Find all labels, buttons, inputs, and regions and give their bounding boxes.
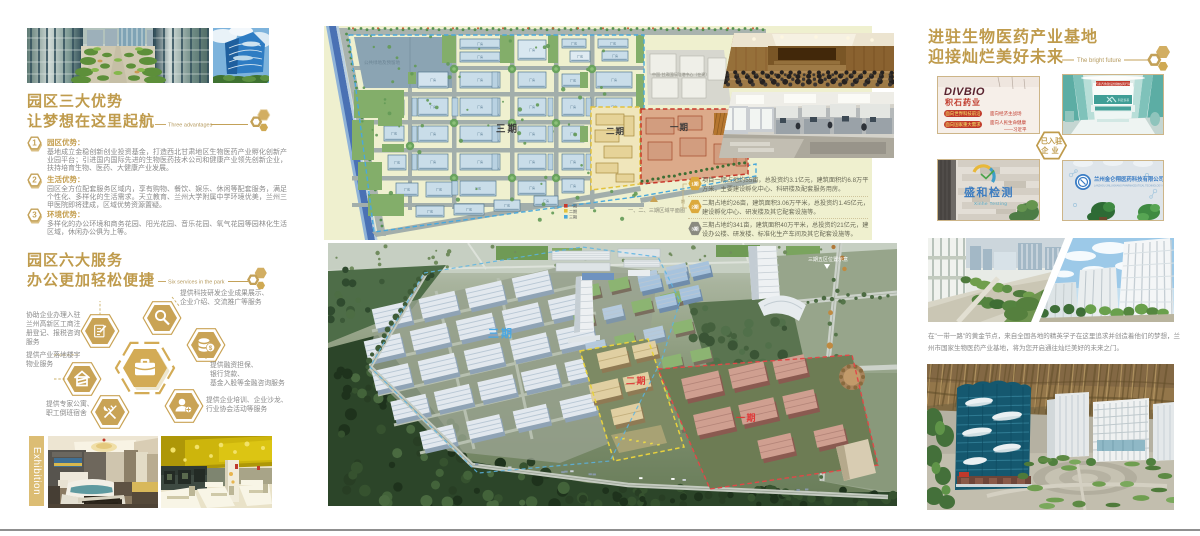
svg-text:行业协会活动等服务: 行业协会活动等服务 (206, 404, 267, 413)
svg-text:Three advantages: Three advantages (168, 123, 213, 129)
svg-text:厂房: 厂房 (436, 187, 442, 192)
svg-text:厂房: 厂房 (529, 159, 535, 164)
svg-text:公共绿地及预留地: 公共绿地及预留地 (364, 59, 400, 66)
svg-text:厂房: 厂房 (404, 187, 410, 192)
svg-text:2期: 2期 (691, 204, 699, 211)
svg-text:已入驻: 已入驻 (1041, 137, 1063, 146)
svg-text:银行贷款、: 银行贷款、 (210, 369, 244, 378)
svg-text:三期: 三期 (569, 214, 577, 220)
svg-text:厂房: 厂房 (529, 77, 535, 82)
svg-text:1: 1 (32, 139, 37, 148)
svg-text:三期五区位置示意: 三期五区位置示意 (808, 256, 848, 263)
svg-text:厂房: 厂房 (577, 54, 583, 59)
svg-text:厂房: 厂房 (477, 159, 483, 164)
svg-text:厂房: 厂房 (543, 198, 549, 203)
svg-text:一期: 一期 (670, 122, 689, 132)
svg-text:二期: 二期 (626, 375, 647, 386)
svg-text:积石药业: 积石药业 (945, 97, 981, 107)
svg-text:万泰齐鲁建设创驰谷风行动: 万泰齐鲁建设创驰谷风行动 (1095, 81, 1131, 86)
svg-text:厂房: 厂房 (610, 41, 616, 46)
svg-text:期: 期 (681, 198, 685, 204)
svg-text:厂房: 厂房 (529, 185, 535, 190)
svg-text:一期: 一期 (569, 203, 577, 209)
svg-text:面向国家重大需求: 面向国家重大需求 (945, 121, 981, 128)
svg-text:厂房: 厂房 (477, 54, 483, 59)
svg-text:科近泰基: 科近泰基 (1118, 98, 1129, 102)
svg-text:1期: 1期 (691, 181, 699, 188)
svg-text:盛和检测: 盛和检测 (964, 185, 1014, 199)
svg-text:厂房: 厂房 (504, 203, 510, 208)
svg-text:面向人民生命健康: 面向人民生命健康 (990, 119, 1026, 126)
svg-text:一: 一 (681, 188, 685, 193)
svg-text:厂房: 厂房 (570, 183, 576, 188)
svg-text:册登记、报税咨询: 册登记、报税咨询 (26, 328, 81, 337)
svg-text:提供产业落地楼宇: 提供产业落地楼宇 (26, 350, 81, 359)
svg-text:厂房: 厂房 (529, 131, 535, 136)
svg-text:职工倒班宿舍: 职工倒班宿舍 (46, 408, 87, 417)
svg-text:厂房: 厂房 (477, 41, 483, 46)
svg-text:面向经济主战场: 面向经济主战场 (990, 110, 1022, 117)
svg-text:厂房: 厂房 (430, 131, 436, 136)
svg-text:一期: 一期 (736, 412, 757, 423)
svg-text:兰州金仑翔医药科技有限公司: 兰州金仑翔医药科技有限公司 (1094, 175, 1163, 183)
svg-text:厂房: 厂房 (529, 47, 535, 52)
svg-text:二期: 二期 (606, 126, 625, 136)
svg-text:厂房: 厂房 (394, 160, 400, 165)
svg-text:厂房: 厂房 (570, 159, 576, 164)
svg-text:企业介绍、交流推广等服务: 企业介绍、交流推广等服务 (180, 297, 262, 306)
svg-text:二期: 二期 (569, 208, 577, 214)
svg-text:厂房: 厂房 (391, 131, 397, 136)
svg-text:提供融资担保、: 提供融资担保、 (210, 360, 258, 369)
svg-text:一、二、三期区域平面图: 一、二、三期区域平面图 (628, 206, 685, 214)
svg-text:协助企业办理入驻: 协助企业办理入驻 (26, 310, 81, 319)
svg-text:Xinhe Testing: Xinhe Testing (974, 201, 1007, 206)
svg-text:面向世界科技前沿: 面向世界科技前沿 (945, 110, 981, 117)
svg-text:厂房: 厂房 (570, 104, 576, 109)
svg-text:——习近平: ——习近平 (1004, 126, 1027, 133)
svg-text:2: 2 (32, 176, 37, 185)
svg-text:企业: 企业 (1040, 146, 1061, 155)
svg-text:The bright future: The bright future (1077, 58, 1122, 64)
svg-text:厂房: 厂房 (611, 77, 617, 82)
svg-text:厂房: 厂房 (430, 77, 436, 82)
svg-text:厂房: 厂房 (571, 41, 577, 46)
svg-text:DIVBIO: DIVBIO (944, 86, 985, 98)
svg-text:厂房: 厂房 (477, 131, 483, 136)
svg-text:厂房: 厂房 (570, 78, 576, 83)
svg-text:物业服务: 物业服务 (26, 359, 53, 368)
svg-text:三期: 三期 (488, 326, 514, 340)
svg-text:提供科技研发企业成果展示、: 提供科技研发企业成果展示、 (180, 288, 268, 297)
svg-text:中国·甘肃国际陆港中心（在建）: 中国·甘肃国际陆港中心（在建） (652, 71, 709, 77)
svg-text:提供专家公寓、: 提供专家公寓、 (46, 399, 94, 408)
svg-text:LANZHOU JINLUNXIANG PHARMACEUT: LANZHOU JINLUNXIANG PHARMACEUTICAL TECHN… (1094, 185, 1163, 188)
svg-text:厂房: 厂房 (477, 104, 483, 109)
svg-text:3: 3 (32, 211, 37, 220)
svg-text:基金入股等金融咨询服务: 基金入股等金融咨询服务 (210, 378, 285, 387)
svg-text:兰州高新区工商注: 兰州高新区工商注 (26, 319, 81, 328)
svg-text:提供企业培训、企业沙龙、: 提供企业培训、企业沙龙、 (206, 395, 288, 404)
svg-text:三期: 三期 (496, 123, 519, 135)
svg-text:厂房: 厂房 (612, 53, 618, 58)
svg-text:厂房: 厂房 (529, 104, 535, 109)
svg-text:厂房: 厂房 (430, 159, 436, 164)
svg-text:厂房: 厂房 (477, 77, 483, 82)
svg-text:3期: 3期 (691, 226, 699, 233)
svg-text:厂房: 厂房 (466, 207, 472, 212)
svg-text:服务: 服务 (26, 337, 40, 346)
svg-text:厂房: 厂房 (427, 209, 433, 214)
